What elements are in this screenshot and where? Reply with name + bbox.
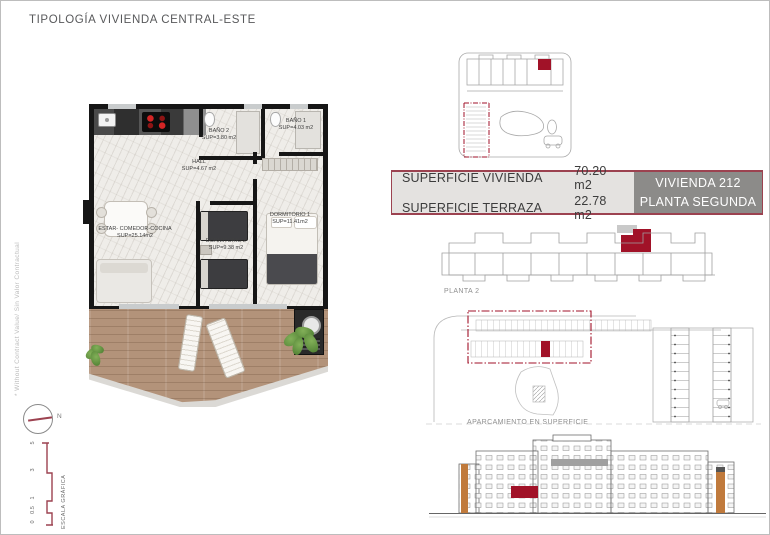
unit-id-box: VIVIENDA 212 PLANTA SEGUNDA <box>634 172 762 213</box>
room-area: SUP=4.67 m2 <box>182 166 216 172</box>
parking-plan <box>421 304 766 432</box>
page-title: TIPOLOGÍA VIVIENDA CENTRAL-ESTE <box>29 14 256 26</box>
chair <box>96 207 107 218</box>
strip-outline <box>442 233 715 281</box>
single-bed <box>200 211 248 241</box>
key-site-plan <box>453 45 583 165</box>
unit-highlight <box>538 59 551 70</box>
glass-door <box>119 304 179 309</box>
building-elevation <box>429 434 766 534</box>
surface-label: SUPERFICIE TERRAZA <box>402 201 550 215</box>
surface-value: 22.78 m2 <box>574 194 624 222</box>
facade-band <box>551 459 608 466</box>
compass-needle <box>28 416 52 421</box>
room-name: HALL <box>192 159 206 165</box>
floor-strip-plan <box>439 225 719 287</box>
window <box>244 104 262 109</box>
scale-tick: 3 <box>30 464 36 476</box>
surface-value: 70.20 m2 <box>574 164 624 192</box>
chair <box>146 207 157 218</box>
room-label-bedroom1: DORMITORIO 1 SUP=11.41m2 <box>261 212 319 226</box>
surface-label: SUPERFICIE VIVIENDA <box>402 171 550 185</box>
stall-row <box>476 320 651 331</box>
table-row: SUPERFICIE TERRAZA 22.78 m2 <box>402 194 624 222</box>
room-label-living: ESTAR- COMEDOR-COCINA SUP=25.14m2 <box>94 226 176 240</box>
floor-strip-label: PLANTA 2 <box>444 288 479 295</box>
room-name: DORMITORIO 1 <box>270 212 310 218</box>
scale-tick: 0.5 <box>30 504 36 516</box>
room-area: SUP=3.80 m2 <box>202 135 236 141</box>
wall <box>253 152 257 164</box>
glass-door <box>209 304 287 309</box>
parking-label: APARCAMIENTO EN SUPERFICIE <box>467 419 588 426</box>
parking-space-highlight <box>541 341 550 357</box>
room-name: ESTAR- COMEDOR-COCINA <box>98 226 171 232</box>
north-arrow <box>23 404 53 434</box>
kitchen-sink <box>98 113 116 127</box>
room-label-bath1: BAÑO 1 SUP=4.03 m2 <box>269 118 323 132</box>
kitchen-counter <box>94 109 206 135</box>
roads <box>426 316 761 424</box>
site-outline <box>459 53 571 157</box>
apartment-floorplan: ESTAR- COMEDOR-COCINA SUP=25.14m2 HALL S… <box>89 104 328 407</box>
unit-number: VIVIENDA 212 <box>655 174 741 193</box>
room-label-hall: HALL SUP=4.67 m2 <box>174 159 224 173</box>
wall <box>279 152 323 156</box>
facade-accent-right <box>716 472 725 513</box>
wall <box>261 109 265 160</box>
typology-sheet: TIPOLOGÍA VIVIENDA CENTRAL-ESTE * Withou… <box>0 0 770 535</box>
plant <box>283 325 323 355</box>
plant <box>85 345 109 365</box>
room-name: BAÑO 1 <box>286 118 306 124</box>
graphic-scale: 0 0.5 1 3 5 ESCALA GRÁFICA <box>27 437 79 533</box>
room-area: SUP=9.38 m2 <box>209 245 243 251</box>
room-area: SUP=11.41m2 <box>272 219 308 225</box>
facade-masses <box>459 435 734 513</box>
surface-values: SUPERFICIE VIVIENDA 70.20 m2 SUPERFICIE … <box>392 172 634 213</box>
scale-tick: 1 <box>30 492 36 504</box>
terrace <box>89 309 328 407</box>
scale-tick: 5 <box>30 437 36 449</box>
window <box>290 104 308 109</box>
toilet <box>204 112 215 127</box>
parking-stalls <box>466 107 486 151</box>
north-label: N <box>57 413 62 420</box>
room-label-bedroom2: DORMITORIO 2 SUP=9.38 m2 <box>196 238 256 252</box>
room-label-bath2: BAÑO 2 SUP=3.80 m2 <box>198 128 240 142</box>
facade-accent-cap <box>716 467 725 472</box>
scale-label: ESCALA GRÁFICA <box>61 445 67 529</box>
single-bed <box>200 259 248 289</box>
floorplan-interior: ESTAR- COMEDOR-COCINA SUP=25.14m2 HALL S… <box>89 104 328 311</box>
scale-tick: 0 <box>30 516 36 528</box>
table-row: SUPERFICIE VIVIENDA 70.20 m2 <box>402 164 624 192</box>
unit-floor: PLANTA SEGUNDA <box>640 193 757 212</box>
cooktop <box>142 112 170 132</box>
wardrobe <box>262 158 318 171</box>
facade-accent-left <box>461 464 468 513</box>
unit-highlight <box>511 486 538 498</box>
stall-row <box>471 341 583 357</box>
building-footprint <box>515 367 558 415</box>
room-name: DORMITORIO 2 <box>206 238 246 244</box>
wall <box>210 201 253 205</box>
room-area: SUP=4.03 m2 <box>279 125 313 131</box>
room-area: SUP=25.14m2 <box>117 233 153 239</box>
parking-structure <box>653 328 753 422</box>
sofa <box>96 259 152 303</box>
disclaimer-note: * Without Contract Value/ Sin Valor Cont… <box>14 184 21 396</box>
surface-summary-table: SUPERFICIE VIVIENDA 70.20 m2 SUPERFICIE … <box>391 170 763 215</box>
room-name: BAÑO 2 <box>209 128 229 134</box>
